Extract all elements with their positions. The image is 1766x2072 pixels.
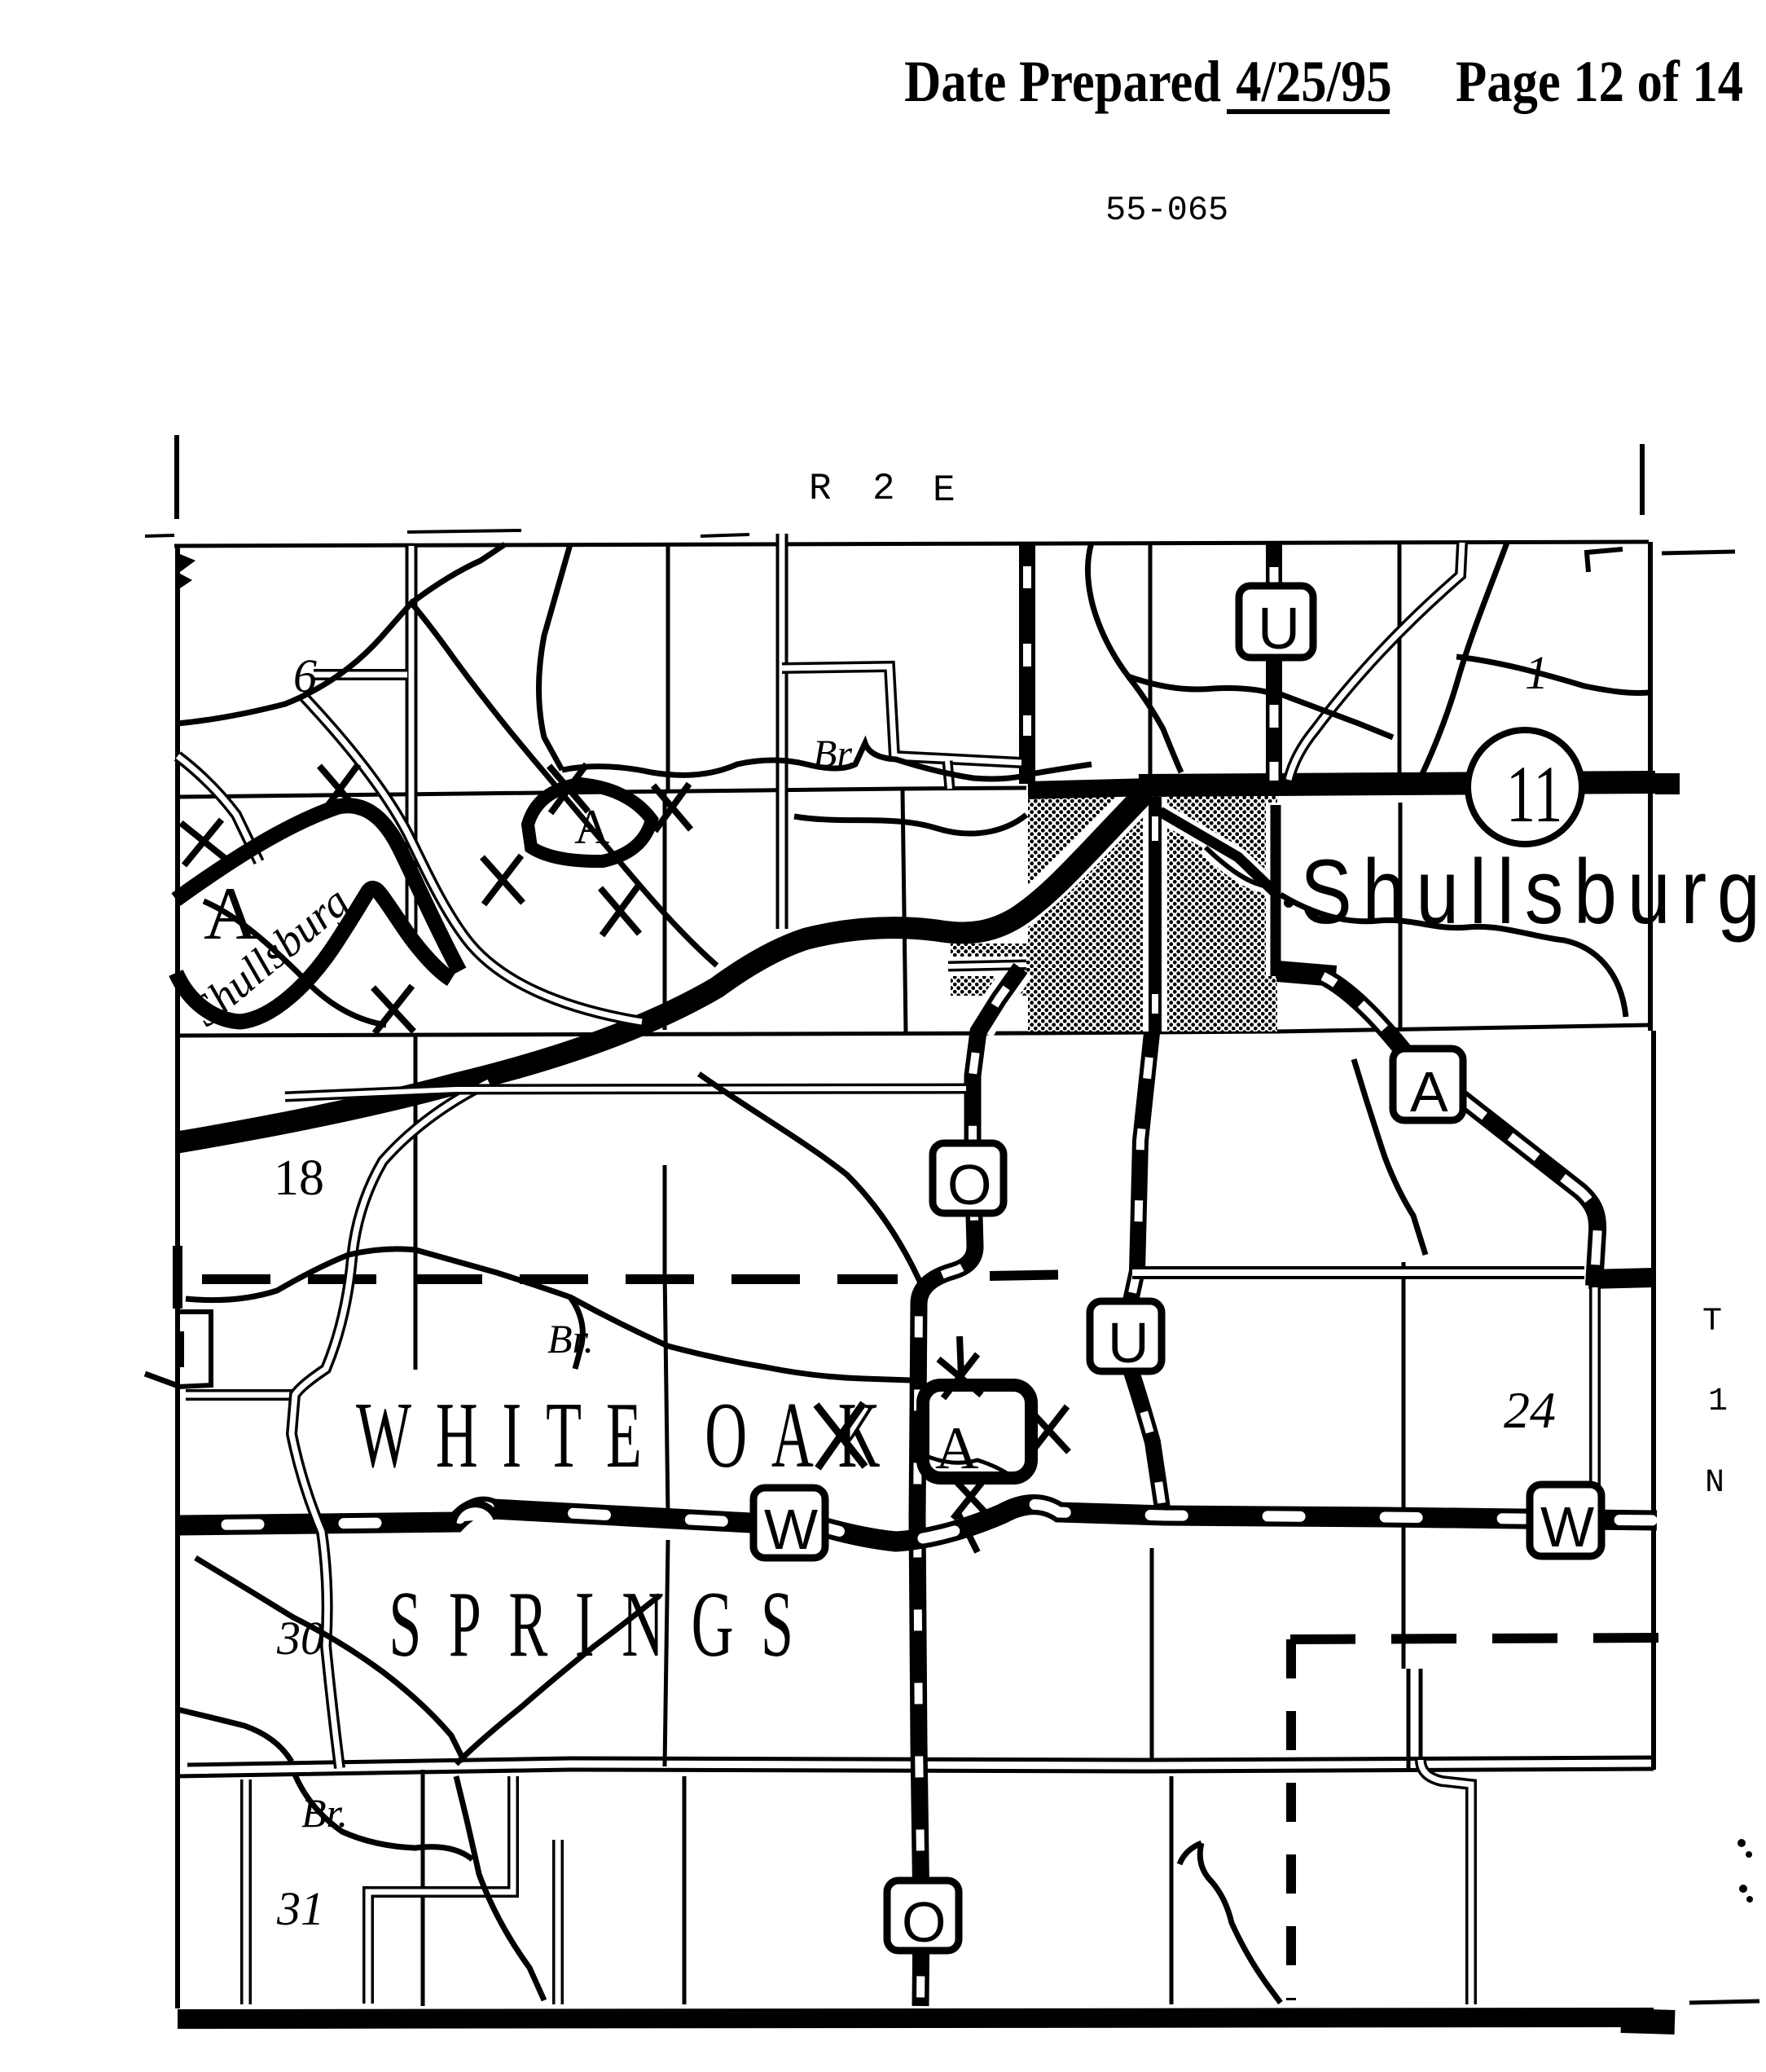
- svg-text:55-065: 55-065: [1105, 191, 1228, 230]
- svg-text:Br.: Br.: [547, 1316, 594, 1362]
- svg-text:Br.: Br.: [813, 732, 858, 776]
- svg-text:6: 6: [293, 649, 317, 702]
- svg-text:W: W: [764, 1498, 818, 1561]
- svg-text:O: O: [947, 1153, 991, 1216]
- svg-text:30: 30: [276, 1612, 324, 1665]
- svg-text:Page 12 of 14: Page 12 of 14: [1456, 49, 1743, 114]
- svg-text:2: 2: [872, 468, 895, 510]
- svg-text:24: 24: [1504, 1381, 1556, 1439]
- svg-text:Shullsburg: Shullsburg: [1300, 842, 1766, 944]
- svg-text:WHITE OAK: WHITE OAK: [356, 1383, 904, 1488]
- svg-text:O: O: [902, 1890, 946, 1954]
- svg-text:W: W: [1540, 1495, 1594, 1559]
- svg-text:A: A: [574, 800, 609, 854]
- svg-text:U: U: [1258, 596, 1300, 662]
- svg-text:SPRINGS: SPRINGS: [389, 1572, 820, 1677]
- svg-text:N: N: [1705, 1465, 1724, 1502]
- svg-text:11: 11: [1506, 748, 1562, 838]
- svg-text:4/25/95: 4/25/95: [1236, 49, 1391, 114]
- svg-text:A: A: [1410, 1060, 1448, 1124]
- svg-text:31: 31: [276, 1882, 324, 1935]
- svg-text:E: E: [933, 469, 955, 512]
- svg-text:18: 18: [274, 1150, 324, 1206]
- svg-text:1: 1: [1525, 646, 1549, 699]
- svg-text:U: U: [1108, 1311, 1149, 1375]
- svg-text:T: T: [1702, 1304, 1722, 1340]
- svg-text:R: R: [809, 468, 832, 510]
- svg-text:1: 1: [1708, 1384, 1728, 1420]
- svg-text:Br.: Br.: [301, 1790, 348, 1836]
- svg-text:Date Prepared: Date Prepared: [904, 49, 1221, 114]
- svg-text:A: A: [935, 1415, 978, 1482]
